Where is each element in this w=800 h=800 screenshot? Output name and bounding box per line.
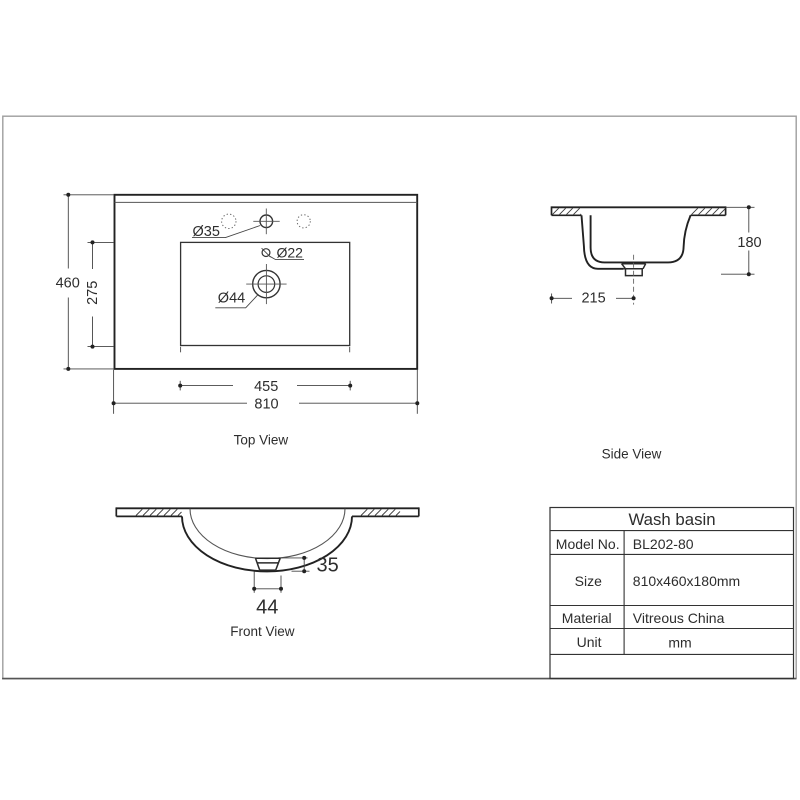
svg-text:Unit: Unit xyxy=(577,634,602,650)
svg-text:Side View: Side View xyxy=(602,446,662,461)
svg-text:460: 460 xyxy=(56,276,80,292)
svg-text:810x460x180mm: 810x460x180mm xyxy=(633,573,740,589)
svg-text:215: 215 xyxy=(581,291,605,307)
svg-text:Material: Material xyxy=(562,610,612,626)
svg-text:275: 275 xyxy=(85,281,101,305)
svg-text:35: 35 xyxy=(317,554,339,576)
svg-text:BL202-80: BL202-80 xyxy=(633,536,694,552)
svg-text:Ø44: Ø44 xyxy=(218,291,245,307)
svg-text:810: 810 xyxy=(254,396,278,412)
svg-text:455: 455 xyxy=(254,379,278,395)
svg-text:Front View: Front View xyxy=(230,624,295,639)
svg-text:mm: mm xyxy=(668,634,691,650)
svg-text:Top View: Top View xyxy=(234,432,289,447)
svg-text:Size: Size xyxy=(575,573,602,589)
svg-text:44: 44 xyxy=(256,597,278,619)
svg-text:Ø22: Ø22 xyxy=(277,245,304,261)
svg-text:Wash basin: Wash basin xyxy=(628,510,715,529)
svg-text:Model No.: Model No. xyxy=(556,536,620,552)
svg-text:Vitreous China: Vitreous China xyxy=(633,610,725,626)
svg-text:180: 180 xyxy=(737,235,761,251)
